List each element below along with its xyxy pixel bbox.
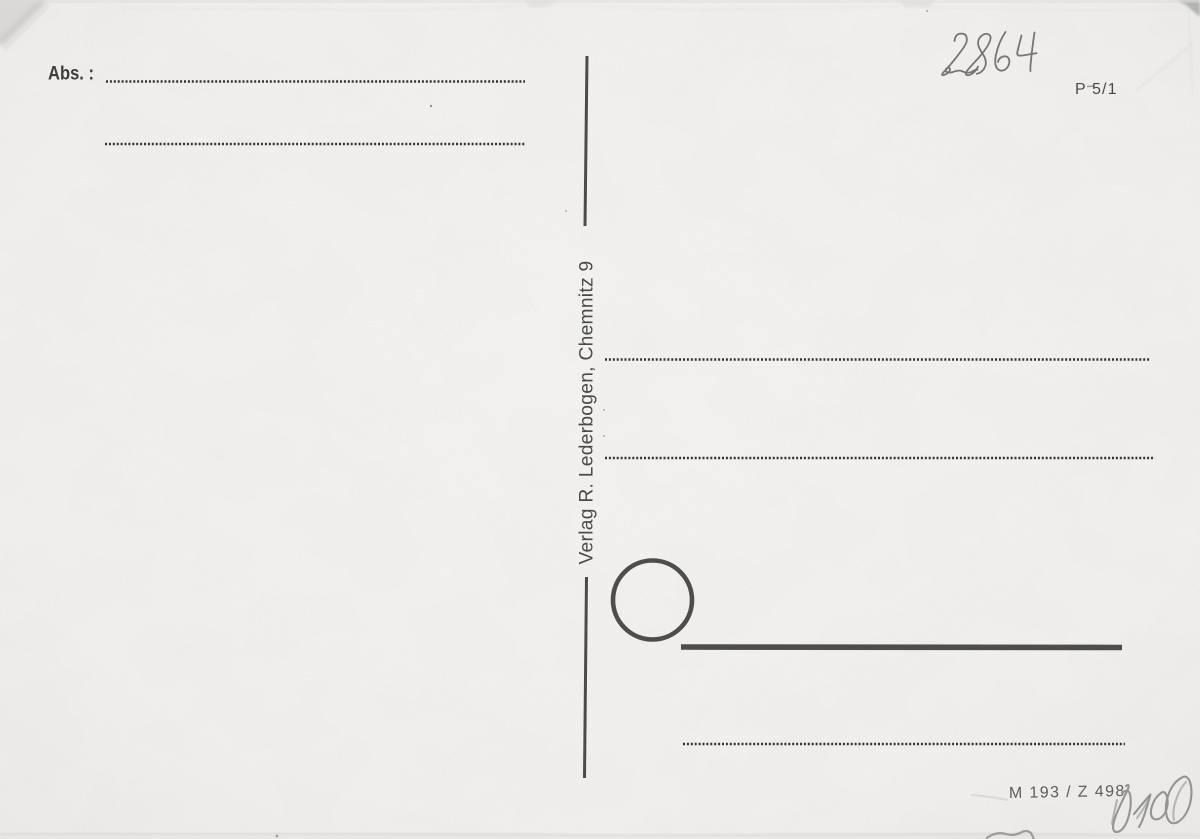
- svg-text:P 5/1: P 5/1: [1075, 81, 1118, 98]
- svg-text:Abs. :: Abs. :: [48, 64, 94, 85]
- svg-text:M 193 / Z 498: M 193 / Z 498: [1009, 783, 1125, 802]
- svg-text:Verlag R. Lederbogen, Chemnitz: Verlag R. Lederbogen, Chemnitz 9: [577, 261, 598, 565]
